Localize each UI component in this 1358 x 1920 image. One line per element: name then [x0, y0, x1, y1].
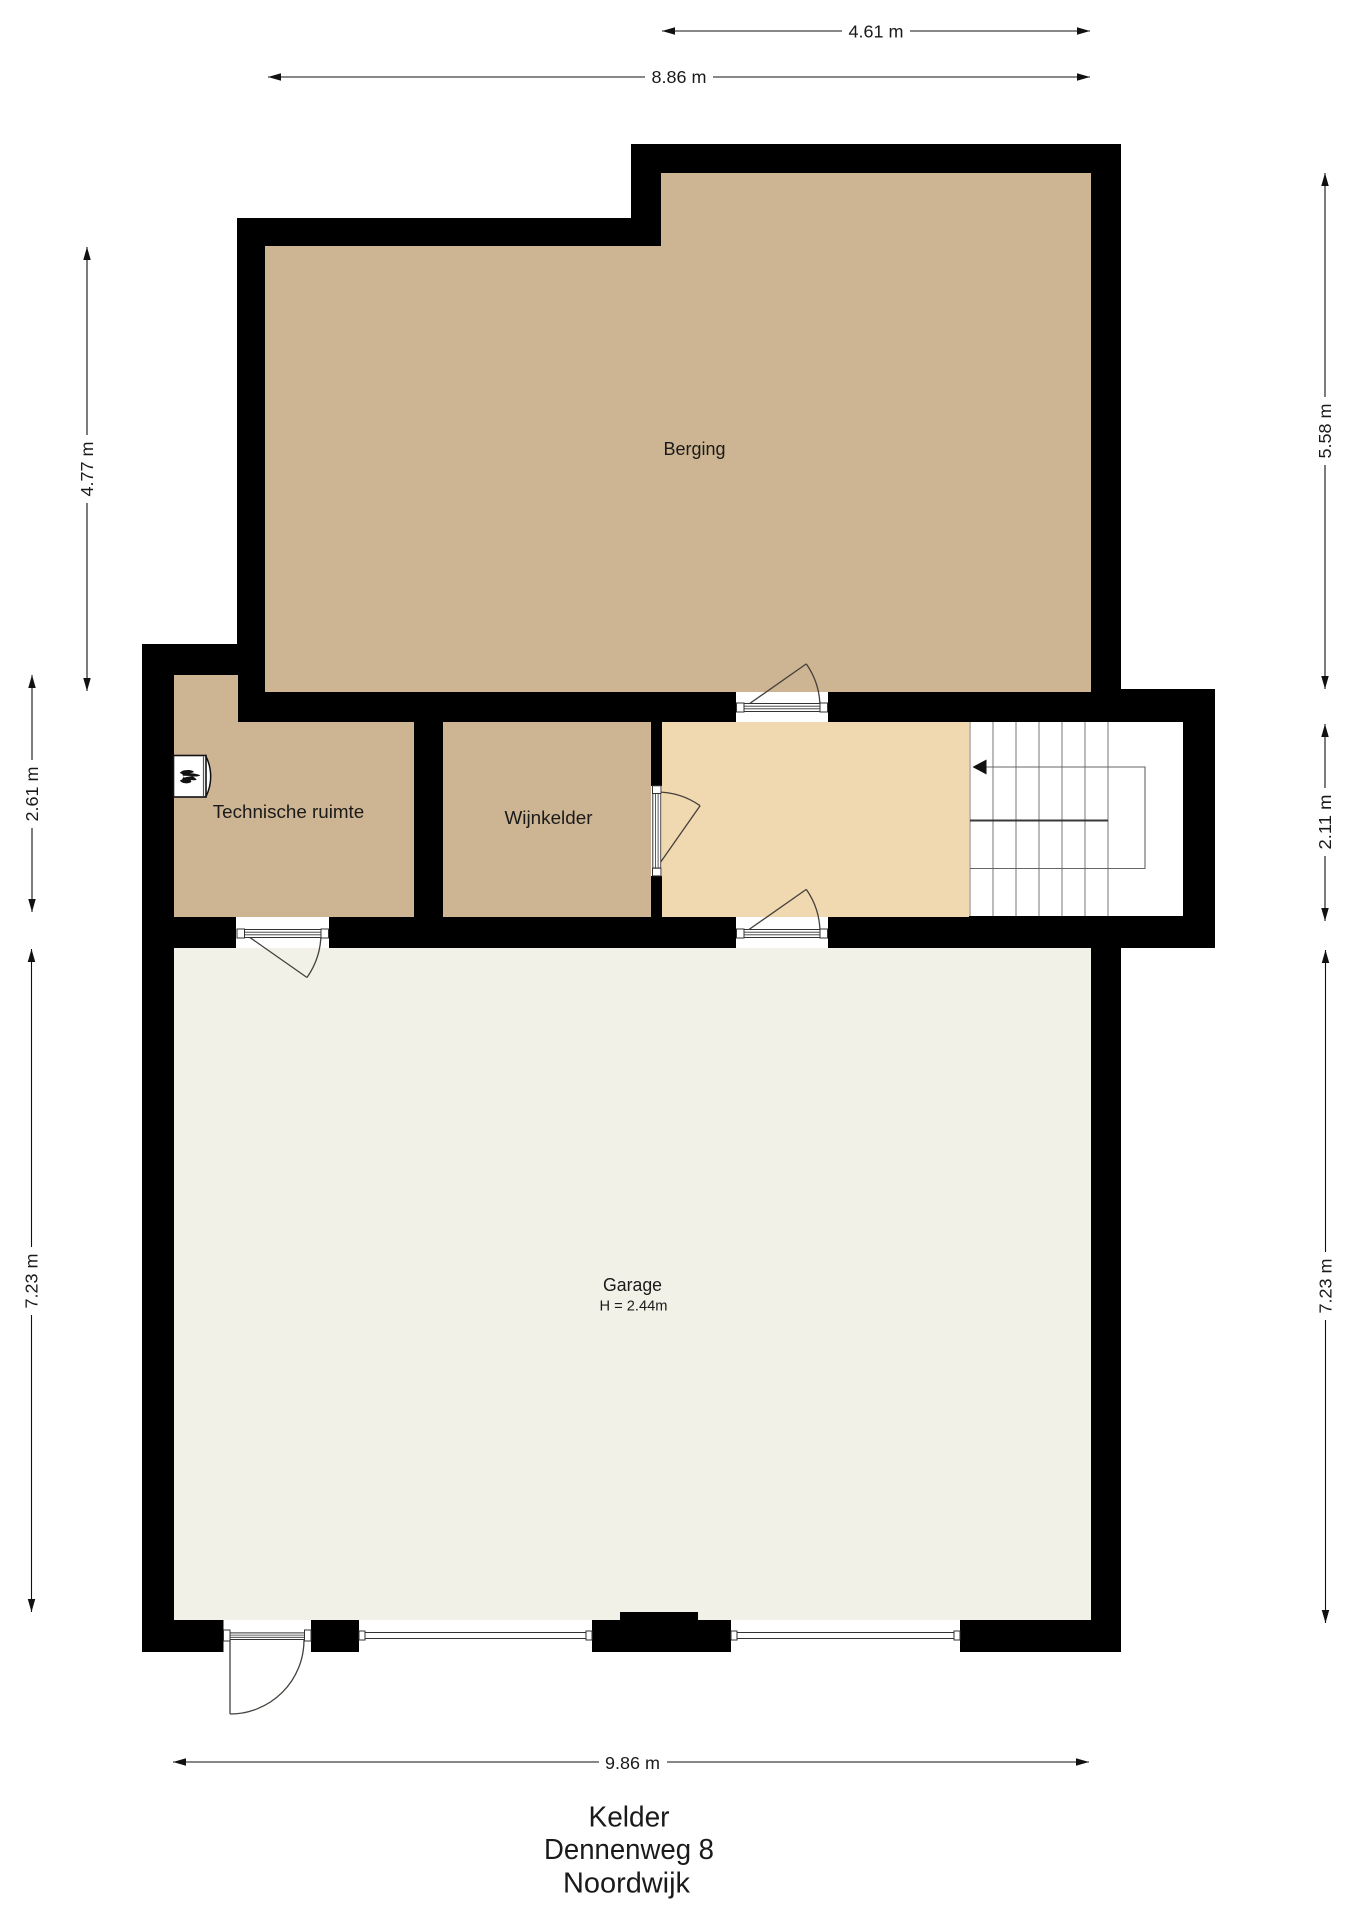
- svg-text:8.86 m: 8.86 m: [652, 67, 707, 87]
- svg-text:Noordwijk: Noordwijk: [563, 1868, 690, 1900]
- svg-text:Wijnkelder: Wijnkelder: [505, 808, 593, 828]
- svg-text:7.23 m: 7.23 m: [1316, 1259, 1336, 1314]
- svg-text:Berging: Berging: [664, 439, 726, 459]
- svg-text:H = 2.44m: H = 2.44m: [600, 1298, 668, 1315]
- svg-text:Kelder: Kelder: [589, 1802, 670, 1834]
- svg-text:Dennenweg 8: Dennenweg 8: [544, 1834, 714, 1866]
- svg-text:Technische ruimte: Technische ruimte: [213, 802, 365, 822]
- svg-text:2.11 m: 2.11 m: [1315, 795, 1335, 850]
- svg-text:2.61 m: 2.61 m: [22, 767, 42, 822]
- svg-text:Garage: Garage: [603, 1275, 662, 1295]
- svg-text:7.23 m: 7.23 m: [22, 1254, 42, 1309]
- svg-text:4.77 m: 4.77 m: [77, 442, 97, 497]
- svg-text:5.58 m: 5.58 m: [1315, 404, 1335, 459]
- svg-text:4.61 m: 4.61 m: [849, 22, 904, 42]
- svg-text:9.86 m: 9.86 m: [605, 1753, 660, 1773]
